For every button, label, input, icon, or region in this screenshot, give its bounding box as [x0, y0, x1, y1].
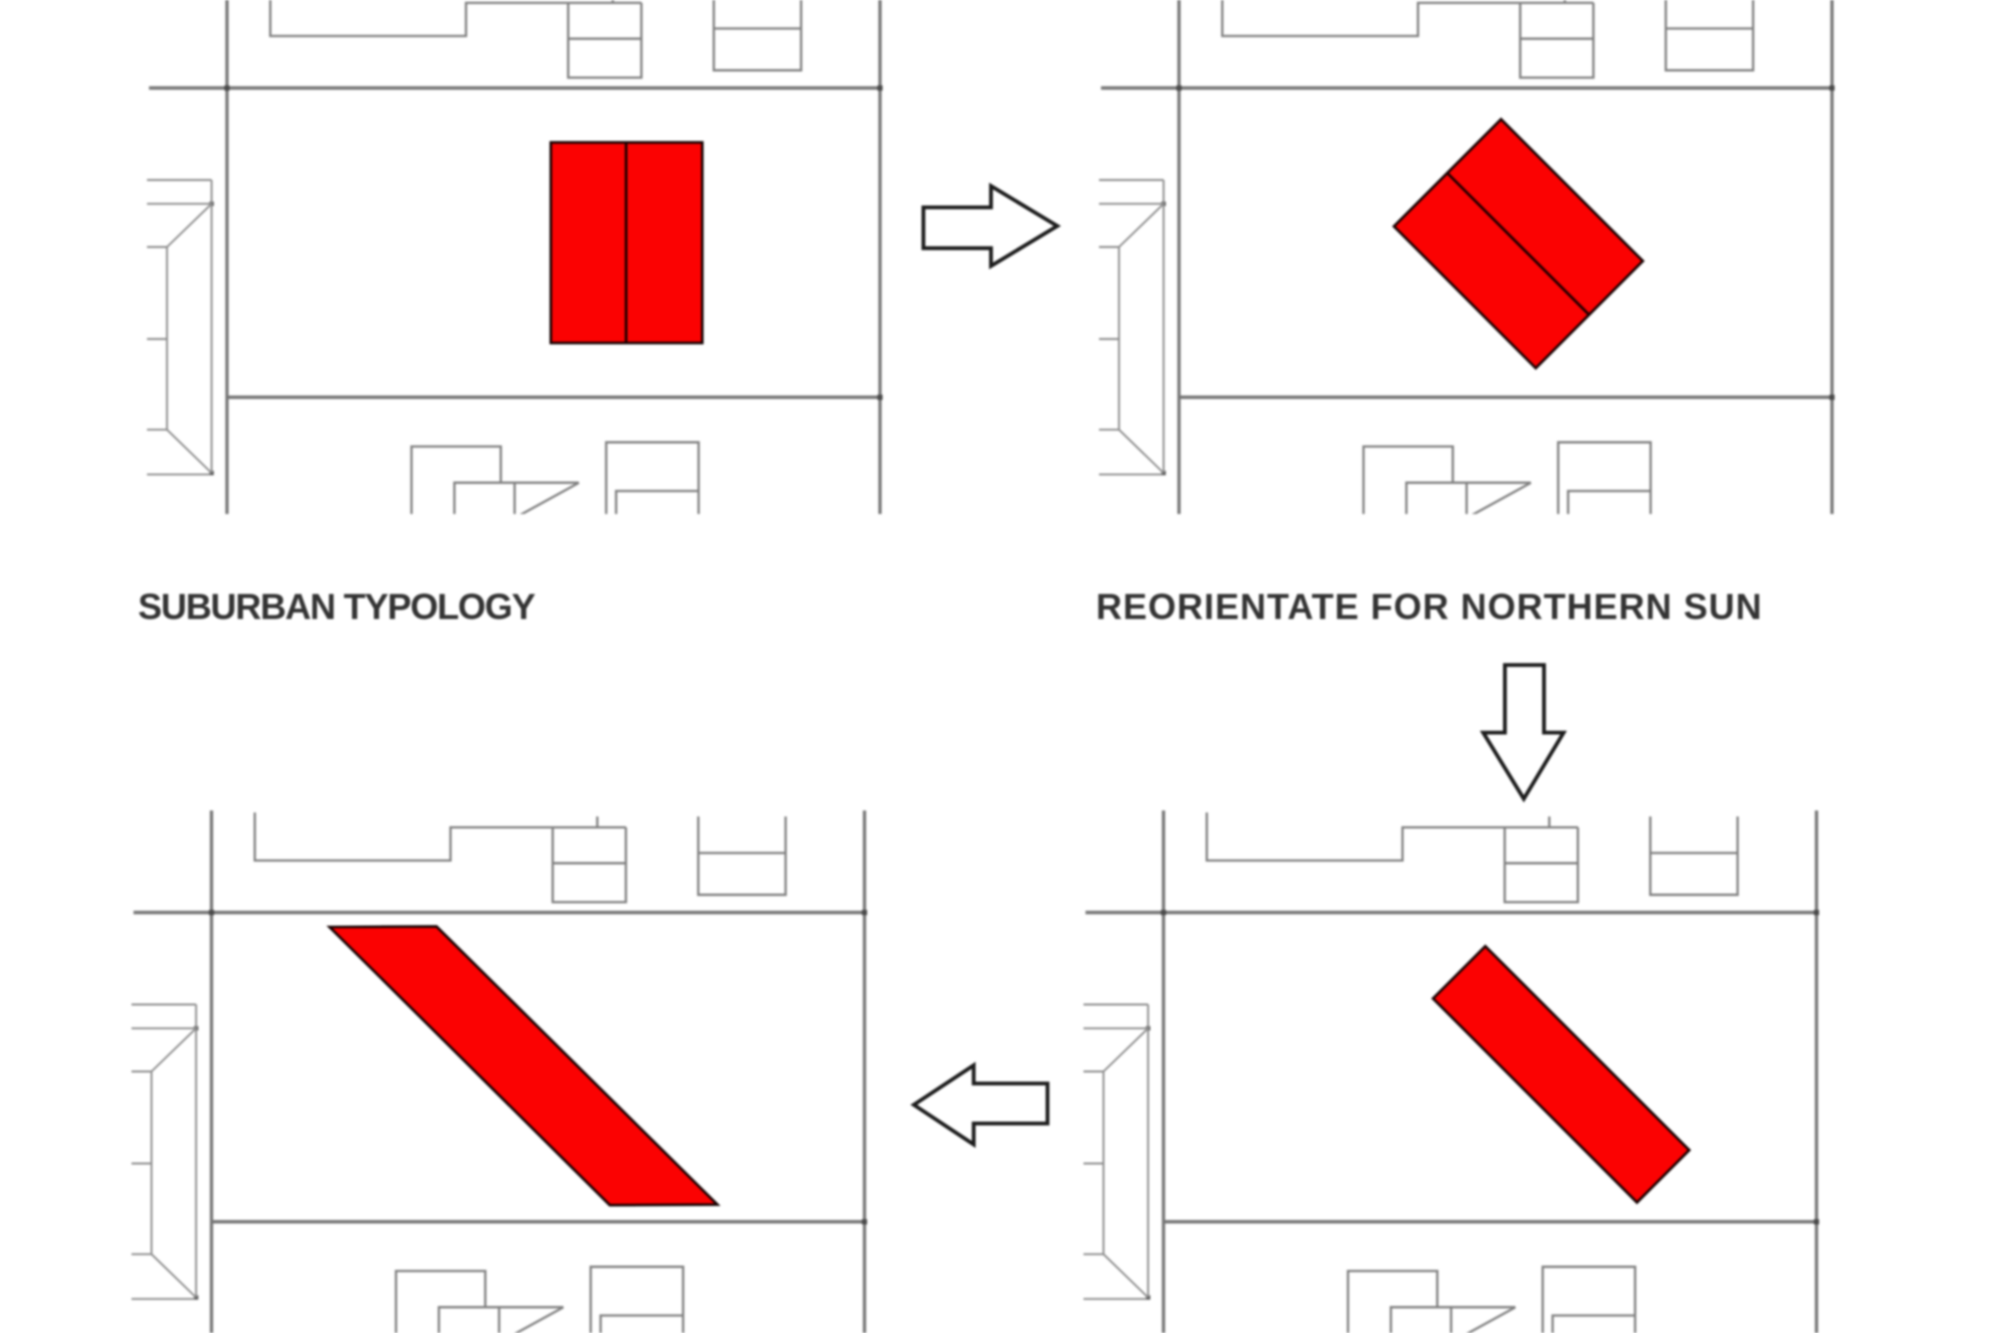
svg-text:SUBURBAN TYPOLOGY: SUBURBAN TYPOLOGY [138, 586, 536, 627]
svg-text:REORIENTATE FOR NORTHERN SUN: REORIENTATE FOR NORTHERN SUN [1096, 586, 1763, 627]
